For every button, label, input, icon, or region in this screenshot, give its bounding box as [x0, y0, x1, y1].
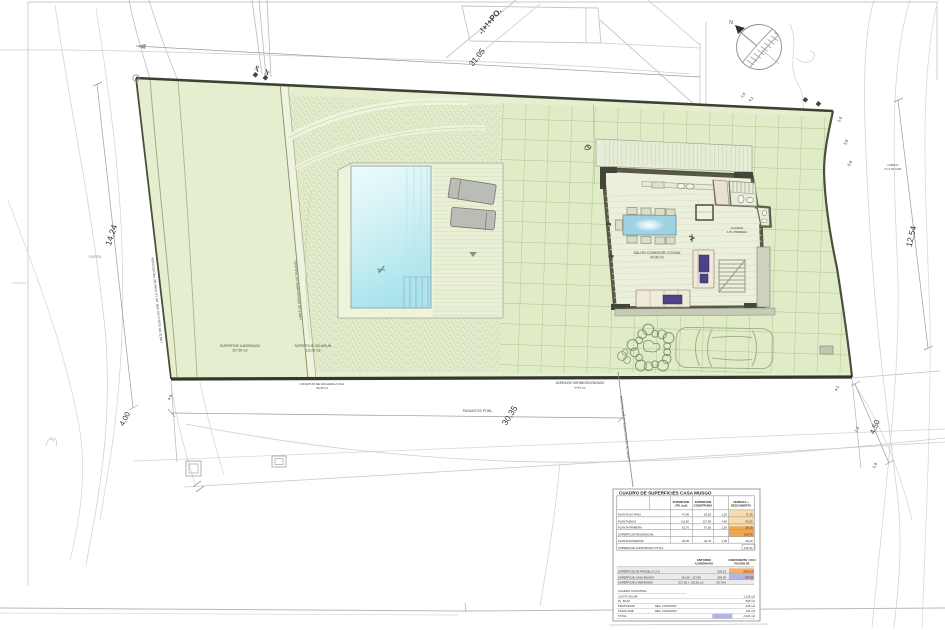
svg-text:SUPERFICIE AJARDINADA: SUPERFICIE AJARDINADA: [220, 344, 261, 348]
svg-text:136,10: 136,10: [744, 546, 753, 550]
svg-text:TOTAL: TOTAL: [618, 614, 627, 618]
svg-text:190,70: 190,70: [744, 532, 753, 536]
svg-text:26,15: 26,15: [746, 526, 753, 530]
svg-text:2,6: 2,6: [263, 69, 271, 77]
svg-text:SUPERFICIE CASA MUSGO: SUPERFICIE CASA MUSGO: [618, 575, 655, 579]
svg-text:LIMITE DE SERVIDUMBRE DE PROTE: LIMITE DE SERVIDUMBRE DE PROTECCION: [619, 395, 631, 460]
svg-text:TASAS SOB.: TASAS SOB.: [618, 609, 635, 613]
svg-text:CUOTA SOLAR: CUOTA SOLAR: [618, 594, 638, 598]
svg-text:UTIL (m2): UTIL (m2): [675, 504, 688, 508]
svg-text:527,55: 527,55: [745, 575, 754, 579]
svg-text:4,00: 4,00: [117, 410, 132, 427]
svg-text:47,60: 47,60: [682, 512, 689, 516]
svg-text:1,5: 1,5: [836, 115, 843, 123]
svg-text:45,20: 45,20: [746, 539, 753, 543]
svg-text:SUPERFICIE AJARDINADA: SUPERFICIE AJARDINADA: [618, 581, 653, 585]
svg-text:34,05 m2: 34,05 m2: [650, 256, 664, 260]
svg-text:93,20: 93,20: [746, 519, 753, 523]
svg-text:30,35: 30,35: [500, 404, 520, 428]
svg-text:PASANTOS POBL.: PASANTOS POBL.: [463, 409, 494, 413]
svg-text:e=10 cm: e=10 cm: [574, 386, 586, 390]
svg-text:SUPERFICIE DE PARCELA CJ.A: SUPERFICIE DE PARCELA CJ.A: [618, 570, 660, 574]
svg-text:PLANTA SOTANO: PLANTA SOTANO: [618, 512, 642, 516]
svg-text:50,76%: 50,76%: [717, 581, 727, 585]
svg-text:3,0: 3,0: [842, 138, 849, 146]
svg-text:1,20: 1,20: [722, 512, 728, 516]
svg-text:229 m2: 229 m2: [746, 604, 756, 608]
svg-text:CUADRO DE SUPERFICIES CASA: CUADRO DE SUPERFICIES CASA MUSGO: [619, 491, 712, 496]
svg-text:2.022 m2: 2.022 m2: [743, 614, 755, 618]
svg-text:1,9: 1,9: [253, 64, 261, 72]
svg-text:127,80: 127,80: [702, 519, 711, 523]
svg-text:PLANTA BAJA: PLANTA BAJA: [618, 519, 636, 523]
svg-text:134 m2: 134 m2: [746, 609, 756, 613]
svg-text:N: N: [729, 20, 733, 26]
svg-text:PROPUESTA: PROPUESTA: [618, 604, 635, 608]
svg-text:30,35 ml: 30,35 ml: [316, 386, 328, 390]
svg-text:SUPERFICIE CONSTRUIDA TOTAL: SUPERFICIE CONSTRUIDA TOTAL: [618, 546, 664, 550]
svg-text:40,05: 40,05: [682, 539, 689, 543]
svg-text:529,55: 529,55: [717, 575, 726, 579]
svg-text:SALON COMEDOR COCINA: SALON COMEDOR COCINA: [634, 251, 682, 255]
svg-text:SUPERFICIE RESIDENCIAL: SUPERFICIE RESIDENCIAL: [618, 532, 655, 536]
svg-text:PUERTA: PUERTA: [89, 255, 103, 259]
svg-text:4,1: 4,1: [747, 95, 755, 103]
svg-text:71,35: 71,35: [746, 512, 753, 516]
svg-text:PUJ DE MAR: PUJ DE MAR: [885, 167, 902, 171]
svg-text:REF. CATASTRO: REF. CATASTRO: [655, 609, 677, 613]
svg-text:PACION DE: PACION DE: [734, 562, 749, 566]
svg-text:5,0: 5,0: [846, 159, 853, 167]
svg-text:42,70: 42,70: [704, 539, 711, 543]
svg-text:51,70: 51,70: [682, 526, 689, 530]
svg-text:SUPERFICIE SOLARIUM: SUPERFICIE SOLARIUM: [295, 344, 332, 348]
svg-text:1.130 m2: 1.130 m2: [743, 594, 755, 598]
svg-text:527,55 m2: 527,55 m2: [232, 349, 247, 353]
svg-text:CONSTRUIDA: CONSTRUIDA: [694, 504, 713, 508]
svg-text:63,50: 63,50: [704, 512, 711, 516]
svg-text:529 m2: 529 m2: [746, 599, 756, 603]
svg-text:A PL PRIMERA: A PL PRIMERA: [727, 230, 748, 234]
svg-text:PLANTA PRIMERA: PLANTA PRIMERA: [618, 526, 642, 530]
svg-text:12,54: 12,54: [904, 225, 919, 248]
svg-text:4,1: 4,1: [833, 384, 840, 392]
svg-text:67,50: 67,50: [704, 526, 711, 530]
svg-text:-!+!+PO.: -!+!+PO.: [477, 7, 504, 37]
svg-text:PL. BAJO: PL. BAJO: [618, 599, 631, 603]
svg-text:PLANTA EXTERIOR: PLANTA EXTERIOR: [618, 539, 644, 543]
svg-text:CUADRO CATASTRAL: CUADRO CATASTRAL: [618, 589, 647, 593]
svg-text:REF. CATASTRO: REF. CATASTRO: [655, 604, 677, 608]
svg-text:527,55 + 132,00 m2: 527,55 + 132,00 m2: [679, 581, 704, 585]
svg-text:132,00 m2: 132,00 m2: [305, 349, 320, 353]
svg-text:DESCUBIERTA: DESCUBIERTA: [731, 504, 751, 508]
svg-text:1,5: 1,5: [739, 91, 747, 99]
svg-text:ACERA DE HORMIGON RAYADO: ACERA DE HORMIGON RAYADO: [556, 381, 605, 385]
svg-text:929,10: 929,10: [717, 570, 726, 574]
svg-text:14,24: 14,24: [103, 223, 119, 247]
svg-text:5023,15: 5023,15: [743, 570, 754, 574]
svg-text:141,05 - 127,80: 141,05 - 127,80: [681, 575, 701, 579]
svg-text:111,60: 111,60: [681, 519, 690, 523]
svg-text:4,60: 4,60: [722, 519, 728, 523]
svg-text:1,05: 1,05: [722, 539, 728, 543]
svg-text:1,9: 1,9: [871, 461, 878, 469]
svg-text:AJARDINADO: AJARDINADO: [695, 562, 714, 566]
svg-text:1,50: 1,50: [722, 526, 728, 530]
